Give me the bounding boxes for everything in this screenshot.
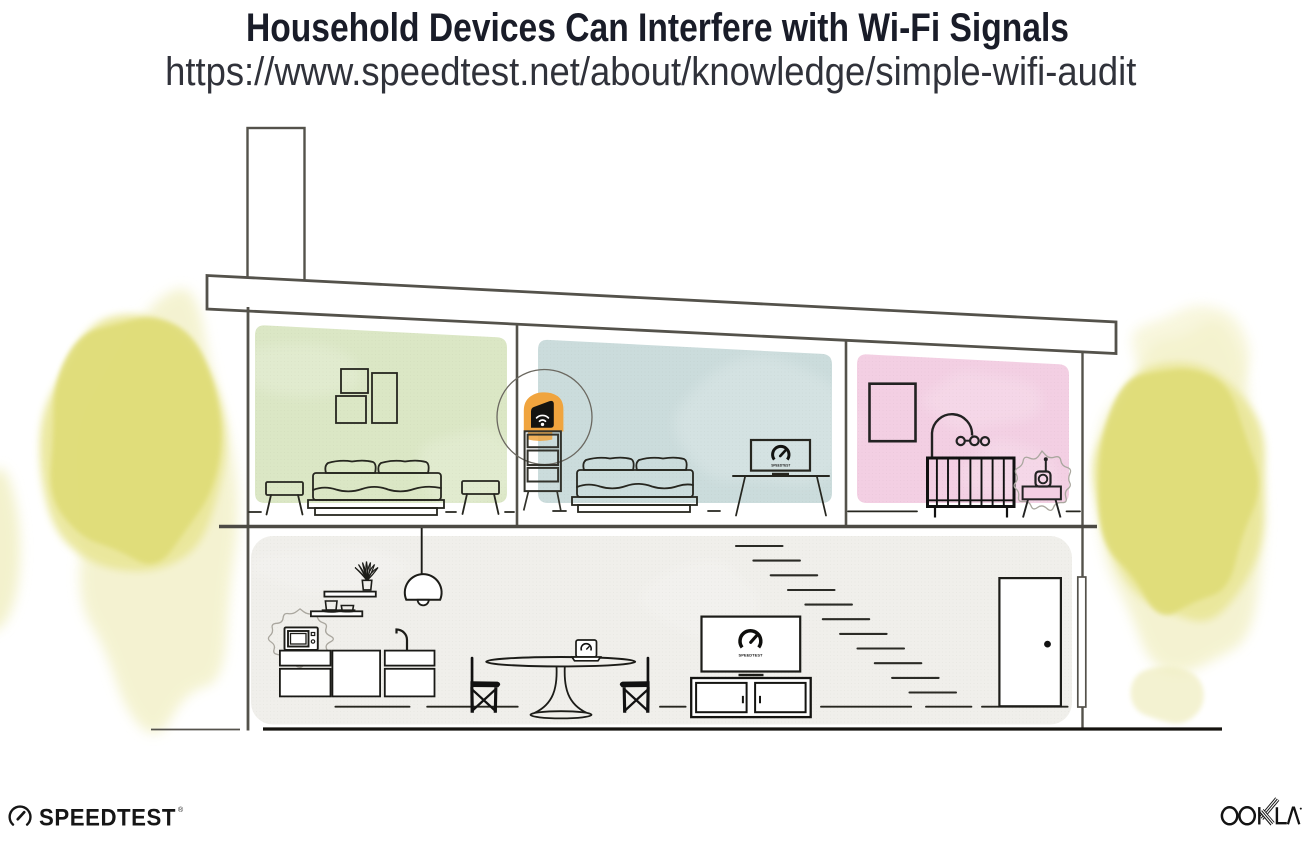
- svg-text:SPEEDTEST: SPEEDTEST: [39, 804, 176, 831]
- svg-text:SPEEDTEST: SPEEDTEST: [771, 464, 791, 468]
- svg-text:SPEEDTEST: SPEEDTEST: [739, 654, 764, 658]
- svg-text:®: ®: [178, 806, 184, 814]
